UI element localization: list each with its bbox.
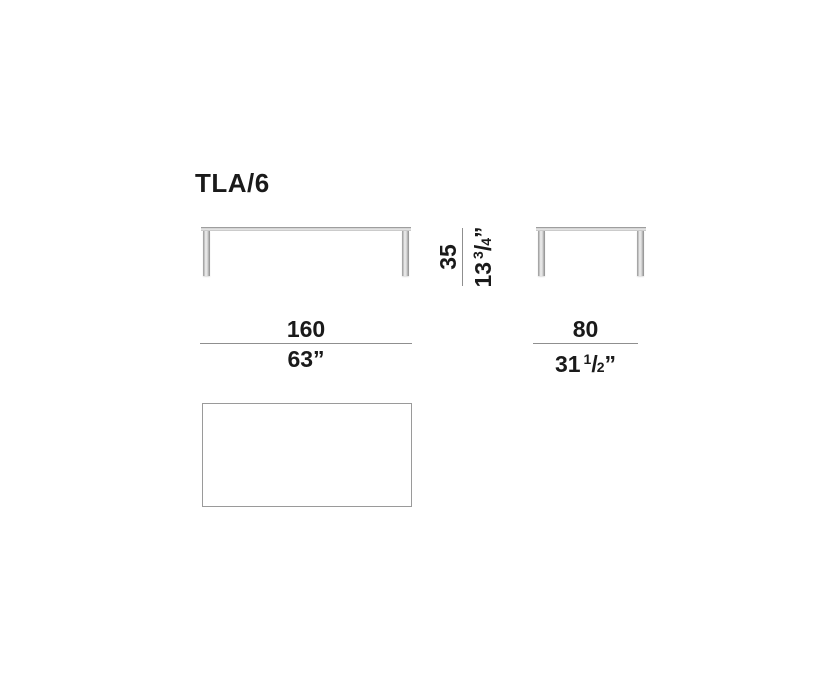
height-fraction-slash: /: [470, 246, 496, 251]
height-dimension: 35 133/4”: [436, 215, 490, 299]
depth-imperial-whole: 31: [555, 351, 581, 377]
plan-view-outline: [202, 403, 412, 507]
front-elevation-view: [201, 227, 411, 276]
technical-drawing-sheet: TLA/6 35 133/4” 160 63” 80 311/2”: [0, 0, 840, 679]
side-left-leg: [538, 231, 545, 276]
height-fraction-denominator: 4: [478, 238, 494, 246]
side-right-leg: [637, 231, 644, 276]
width-imperial-whole: 63: [287, 346, 313, 372]
depth-dimension: 80 311/2”: [533, 317, 638, 379]
width-metric-value: 160: [287, 317, 325, 343]
front-tabletop: [201, 227, 411, 231]
width-dimension: 160 63”: [200, 317, 412, 371]
side-tabletop: [536, 227, 646, 231]
depth-metric-value: 80: [573, 317, 599, 343]
depth-imperial-value: 311/2”: [555, 344, 616, 379]
height-inch-mark: ”: [470, 226, 496, 238]
front-right-leg: [402, 231, 409, 276]
depth-fraction-denominator: 2: [597, 359, 605, 375]
product-code-title: TLA/6: [195, 170, 270, 196]
height-fraction-numerator: 3: [470, 251, 486, 259]
height-metric-value: 35: [436, 244, 462, 270]
side-elevation-view: [536, 227, 646, 276]
front-left-leg: [203, 231, 210, 276]
height-imperial-value: 133/4”: [463, 226, 498, 287]
height-imperial-whole: 13: [470, 262, 496, 288]
width-imperial-value: 63”: [287, 344, 324, 371]
depth-inch-mark: ”: [605, 351, 617, 377]
width-inch-mark: ”: [313, 346, 325, 372]
